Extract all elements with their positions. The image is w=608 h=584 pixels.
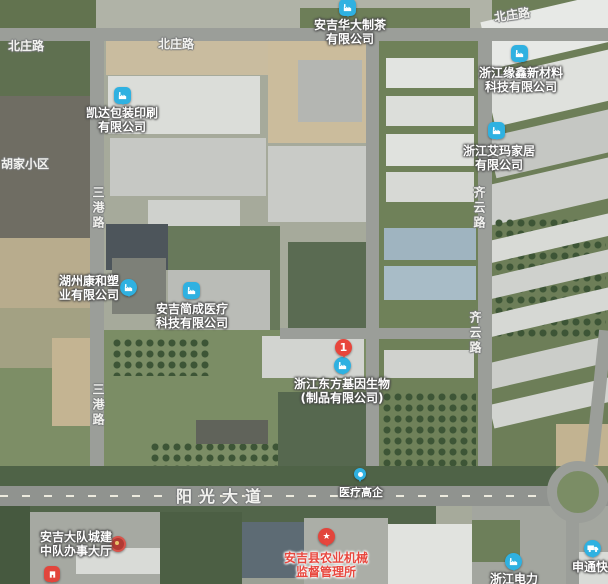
- factory-poi-icon[interactable]: [120, 279, 137, 296]
- white-building: [388, 524, 472, 584]
- factory-poi-icon[interactable]: [183, 282, 200, 299]
- factory-roof-blue: [384, 266, 476, 300]
- truck-poi-icon[interactable]: [584, 540, 601, 557]
- building-frame: [298, 60, 362, 122]
- star-poi-icon[interactable]: ★: [318, 528, 335, 545]
- factory-roof: [386, 172, 474, 202]
- crop-rows: [288, 242, 366, 328]
- factory-roof: [148, 200, 240, 226]
- dirt-patch: [52, 338, 92, 426]
- poi-label-kaida[interactable]: 凯达包装印刷 有限公司: [86, 106, 158, 134]
- poi-label-huada-tea[interactable]: 安吉华大制茶 有限公司: [314, 18, 386, 46]
- poi-label-service-hall[interactable]: 安吉大队城建 中队办事大厅: [40, 530, 112, 558]
- factory-poi-icon[interactable]: [511, 45, 528, 62]
- factory-roof: [386, 58, 474, 88]
- building-glyph: [48, 570, 57, 579]
- poi-label-shentong[interactable]: 申通快递: [572, 560, 608, 574]
- factory-poi-icon[interactable]: [339, 0, 356, 16]
- road-centerline: [0, 495, 608, 497]
- road-label-beizhuang-west: 北庄路: [8, 37, 44, 54]
- area-label-hujia: 胡家小区: [1, 155, 49, 172]
- poi-label-kanghe[interactable]: 湖州康和塑 业有限公司: [59, 274, 119, 302]
- road-label-beizhuang-mid: 北庄路: [158, 35, 194, 52]
- red-poi-icon[interactable]: [44, 566, 60, 582]
- road-label-sangang-south: 三港路: [90, 383, 107, 428]
- map-trees: [0, 0, 96, 30]
- dot-pin-icon[interactable]: [354, 468, 366, 480]
- factory-glyph: [117, 90, 128, 101]
- factory-glyph: [186, 285, 197, 296]
- road-label-yangguang-avenue: 阳光大道: [176, 483, 268, 507]
- road-center: [366, 40, 379, 488]
- row-building: [196, 420, 268, 444]
- factory-glyph: [123, 282, 134, 293]
- road-label-qiyun-north: 齐云路: [471, 186, 488, 231]
- numbered-pin-1[interactable]: 1: [335, 339, 352, 356]
- truck-glyph: [587, 544, 599, 553]
- factory-glyph: [508, 556, 519, 567]
- poi-label-jiancheng[interactable]: 安吉简成医疗 科技有限公司: [156, 302, 228, 330]
- factory-roof: [110, 138, 266, 196]
- road-label-qiyun-south: 齐云路: [467, 311, 484, 356]
- map-trees: [160, 512, 242, 584]
- roadside-trees: [0, 466, 556, 486]
- road-label-sangang-north: 三港路: [90, 186, 107, 231]
- poi-label-orient-gene[interactable]: 浙江东方基因生物 (制品有限公司): [294, 377, 390, 405]
- road-connector: [280, 328, 480, 339]
- factory-roof: [386, 134, 474, 166]
- factory-roof: [386, 96, 474, 126]
- factory-glyph: [342, 2, 353, 13]
- factory-glyph: [491, 125, 502, 136]
- factory-poi-icon[interactable]: [114, 87, 131, 104]
- poi-label-yuanxin[interactable]: 浙江缘鑫新材料 科技有限公司: [479, 66, 563, 94]
- poi-label-agri-machinery[interactable]: 安吉县农业机械 监督管理所: [284, 551, 368, 579]
- map-trees: [0, 506, 30, 584]
- satellite-map-canvas[interactable]: 北庄路 北庄路 北庄路 三港路 三港路 齐云路 齐云路 阳光大道 胡家小区 安吉…: [0, 0, 608, 584]
- factory-roof: [384, 350, 474, 378]
- poi-label-medical-enterprise[interactable]: 医疗高企: [339, 487, 383, 499]
- factory-roof: [268, 146, 366, 222]
- factory-poi-icon[interactable]: [505, 553, 522, 570]
- factory-roof-blue: [384, 228, 476, 260]
- factory-poi-icon[interactable]: [488, 122, 505, 139]
- roundabout: [547, 461, 608, 523]
- poi-label-zhejiang-electric[interactable]: 浙江电力: [490, 572, 538, 584]
- road-roundabout-south: [566, 519, 579, 584]
- poi-label-aima[interactable]: 浙江艾玛家居 有限公司: [463, 144, 535, 172]
- road-qiyun: [478, 40, 492, 486]
- map-trees: [112, 338, 212, 376]
- factory-glyph: [514, 48, 525, 59]
- gov-badge-icon[interactable]: [110, 536, 126, 552]
